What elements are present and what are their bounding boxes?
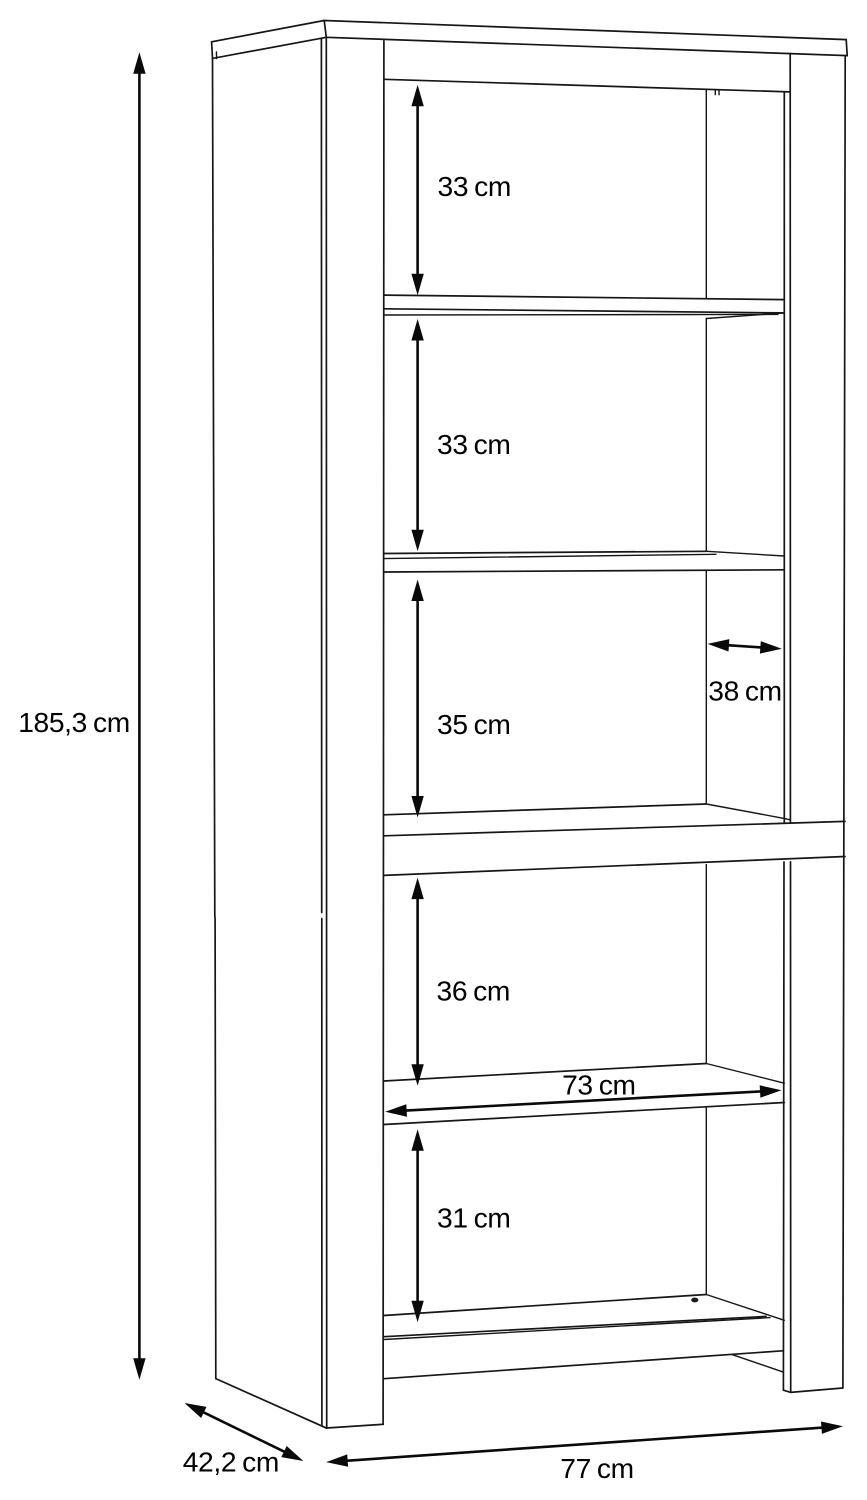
svg-text:42,2 cm: 42,2 cm bbox=[183, 1446, 279, 1478]
svg-text:73 cm: 73 cm bbox=[562, 1069, 636, 1101]
svg-text:35 cm: 35 cm bbox=[437, 708, 511, 740]
svg-text:33 cm: 33 cm bbox=[438, 170, 512, 202]
svg-text:185,3 cm: 185,3 cm bbox=[18, 706, 130, 738]
svg-text:38 cm: 38 cm bbox=[708, 675, 782, 707]
svg-text:33 cm: 33 cm bbox=[437, 428, 511, 460]
svg-text:36 cm: 36 cm bbox=[437, 974, 511, 1006]
svg-text:31 cm: 31 cm bbox=[437, 1202, 511, 1234]
svg-text:77 cm: 77 cm bbox=[560, 1452, 634, 1484]
